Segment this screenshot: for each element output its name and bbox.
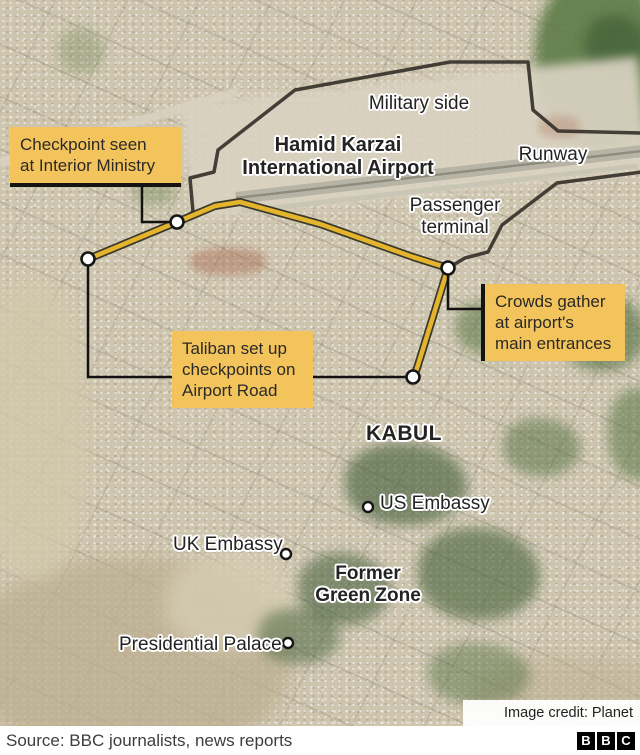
label-green-zone-line2: Green Zone (315, 585, 421, 607)
map-overlay (0, 0, 640, 726)
crowds-callout-connector (448, 272, 481, 309)
bbc-logo-block-3: C (617, 732, 635, 750)
footer-bar: Source: BBC journalists, news reports B … (0, 726, 640, 755)
callout-crowds-line1: Crowds gather (495, 291, 615, 312)
label-passenger-terminal: Passenger terminal (410, 195, 501, 239)
callout-crowds-line2: at airport's (495, 312, 615, 333)
checkpoint-callout-connector (142, 186, 172, 222)
label-runway: Runway (519, 144, 588, 166)
callout-taliban-line1: Taliban set up (182, 338, 303, 359)
label-military-side: Military side (369, 93, 469, 115)
label-terminal-line2: terminal (410, 217, 501, 239)
label-terminal-line1: Passenger (410, 195, 501, 217)
label-airport-line1: Hamid Karzai (242, 134, 433, 157)
checkpoint-dot-road-south (407, 371, 420, 384)
us-embassy-dot (363, 502, 373, 512)
callout-crowds-line3: main entrances (495, 333, 615, 354)
checkpoint-dot-main-entrance (442, 262, 455, 275)
label-airport-line2: International Airport (242, 157, 433, 180)
label-uk-embassy: UK Embassy (173, 534, 283, 556)
checkpoint-dot-road-west (82, 253, 95, 266)
image-credit: Image credit: Planet Labs (463, 700, 640, 726)
label-former-green-zone: Former Green Zone (315, 563, 421, 607)
label-green-zone-line1: Former (315, 563, 421, 585)
callout-taliban-line3: Airport Road (182, 380, 303, 401)
source-text: Source: BBC journalists, news reports (6, 731, 292, 751)
callout-taliban-checkpoints: Taliban set up checkpoints on Airport Ro… (172, 331, 313, 408)
callout-taliban-line2: checkpoints on (182, 359, 303, 380)
presidential-palace-dot (283, 638, 293, 648)
bbc-logo-block-1: B (577, 732, 595, 750)
callout-checkpoint-interior-ministry: Checkpoint seen at Interior Ministry (10, 127, 181, 187)
callout-checkpoint-line1: Checkpoint seen (20, 134, 171, 155)
callout-crowds-gather: Crowds gather at airport's main entrance… (481, 284, 625, 361)
checkpoint-dot-interior-ministry (171, 216, 184, 229)
callout-checkpoint-line2: at Interior Ministry (20, 155, 171, 176)
label-us-embassy: US Embassy (380, 493, 490, 515)
bbc-map-graphic: Checkpoint seen at Interior Ministry Tal… (0, 0, 640, 755)
label-kabul: KABUL (366, 422, 442, 446)
bbc-logo: B B C (577, 732, 635, 750)
label-airport: Hamid Karzai International Airport (242, 134, 433, 180)
bbc-logo-block-2: B (597, 732, 615, 750)
satellite-map: Checkpoint seen at Interior Ministry Tal… (0, 0, 640, 726)
label-presidential-palace: Presidential Palace (119, 634, 282, 656)
